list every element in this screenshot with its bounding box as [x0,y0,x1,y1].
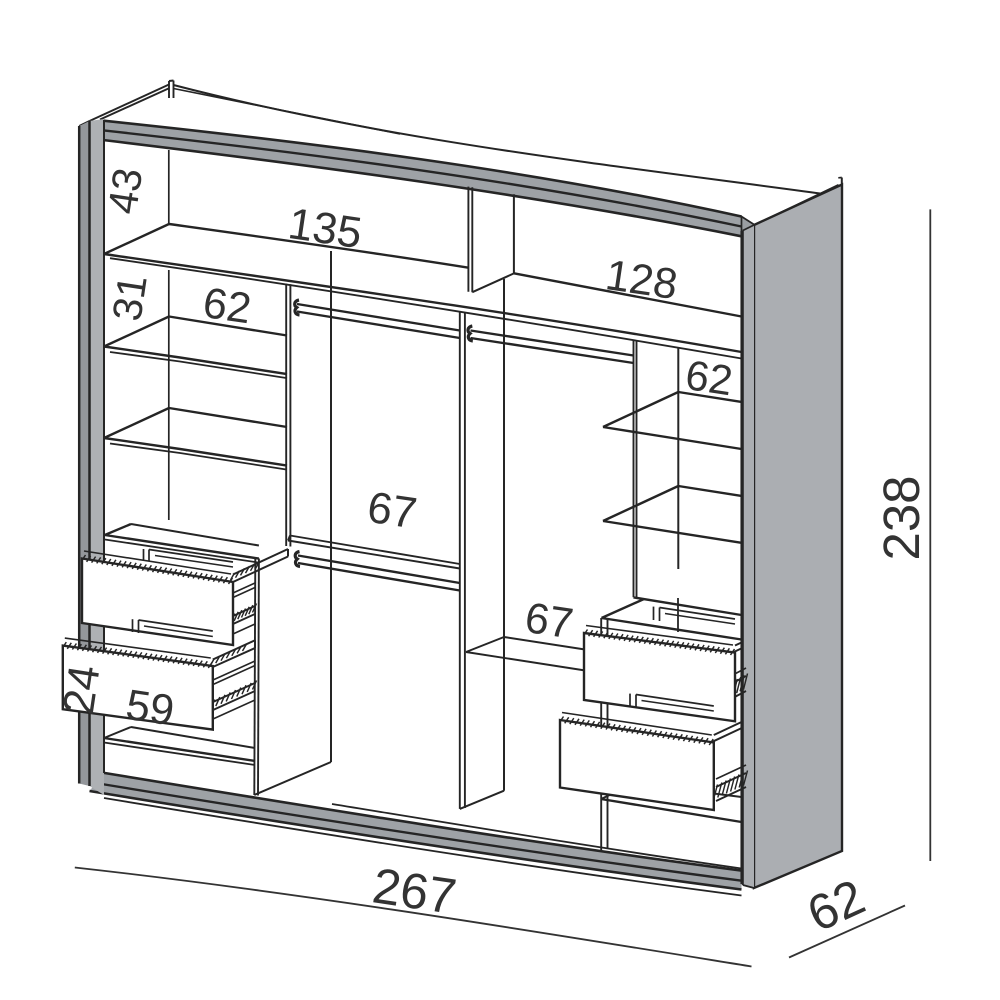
svg-text:67: 67 [364,483,420,539]
svg-text:43: 43 [99,165,151,217]
svg-text:62: 62 [200,279,254,333]
svg-text:24: 24 [54,662,110,718]
svg-text:59: 59 [123,681,177,735]
svg-text:67: 67 [522,594,576,648]
svg-text:62: 62 [683,351,736,404]
svg-text:238: 238 [873,475,930,560]
svg-text:31: 31 [104,272,156,324]
